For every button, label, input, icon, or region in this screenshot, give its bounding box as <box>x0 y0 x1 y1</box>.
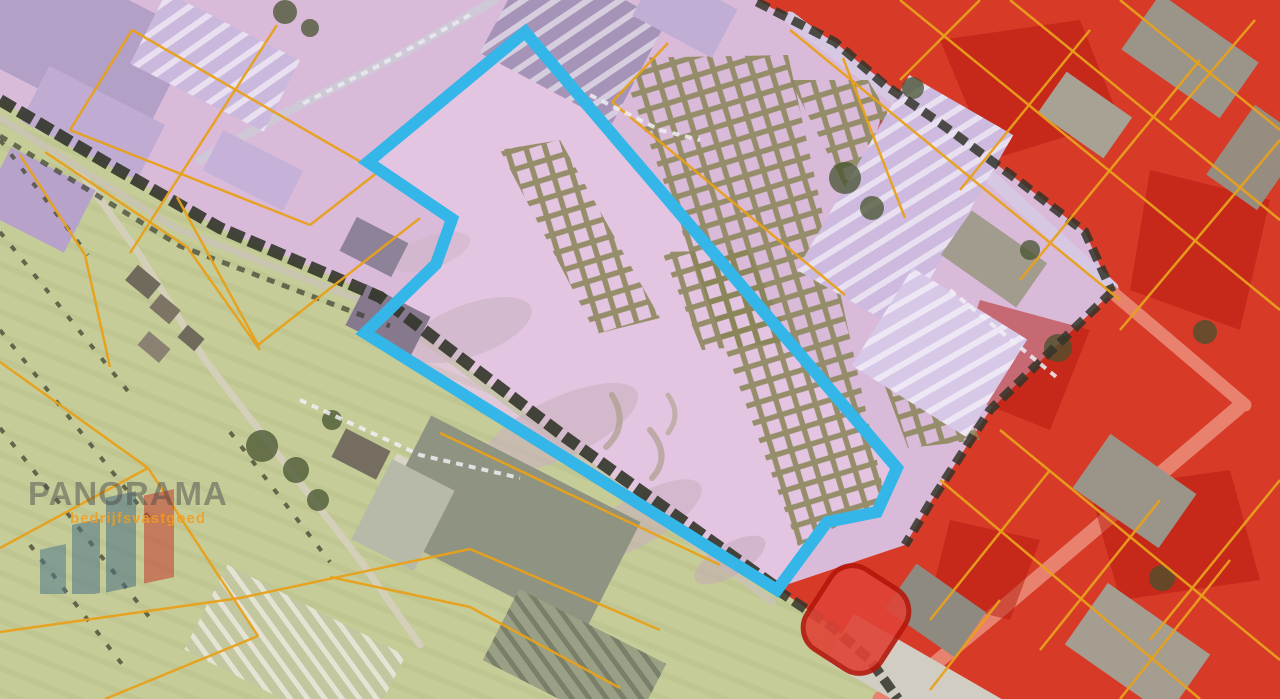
tree-canopy <box>307 489 329 511</box>
tree-canopy <box>902 77 924 99</box>
tree-canopy <box>1020 240 1040 260</box>
tree-canopy <box>860 196 884 220</box>
aerial-zoning-map[interactable] <box>0 0 1280 699</box>
tree-canopy <box>273 0 297 24</box>
tree-canopy <box>1149 565 1175 591</box>
tree-canopy <box>246 430 278 462</box>
tree-canopy <box>829 162 861 194</box>
tree-canopy <box>1193 320 1217 344</box>
tree-canopy <box>301 19 319 37</box>
tree-canopy <box>283 457 309 483</box>
map-viewport[interactable]: PANORAMA bedrijfsvastgoed <box>0 0 1280 699</box>
